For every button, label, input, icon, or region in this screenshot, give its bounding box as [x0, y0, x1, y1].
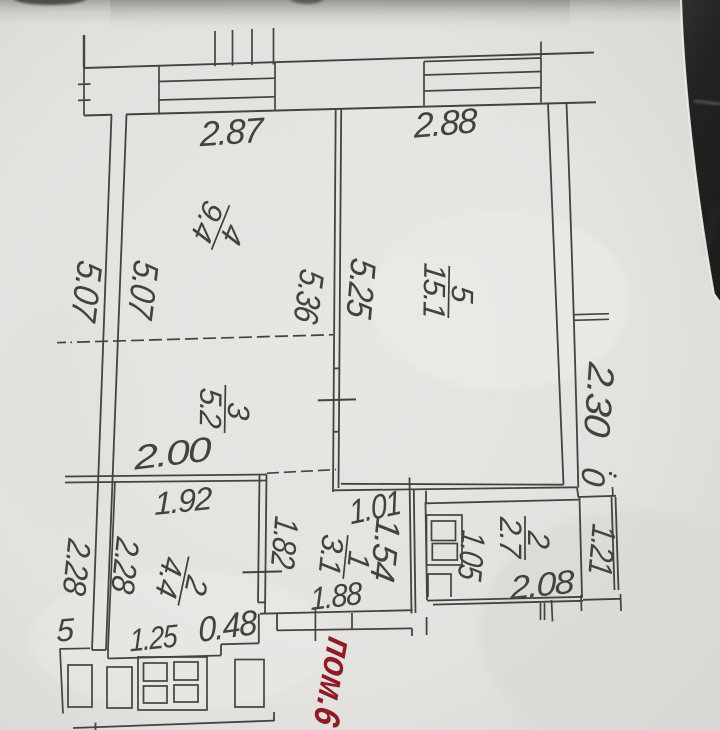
svg-text:2.28: 2.28 — [103, 534, 145, 598]
svg-text:3.1: 3.1 — [312, 532, 350, 577]
svg-text:5.36: 5.36 — [286, 266, 332, 328]
svg-text:1.25: 1.25 — [129, 617, 178, 658]
svg-text:5: 5 — [56, 611, 74, 649]
svg-text:15.1: 15.1 — [416, 261, 452, 319]
svg-text:1.82: 1.82 — [263, 514, 305, 572]
svg-text:2.7: 2.7 — [493, 515, 528, 561]
svg-text:5.07: 5.07 — [63, 257, 111, 326]
svg-text:1.21: 1.21 — [581, 521, 623, 577]
svg-text:2.28: 2.28 — [55, 535, 97, 599]
svg-text:2.08: 2.08 — [509, 563, 576, 607]
svg-text:5.25: 5.25 — [339, 255, 385, 322]
svg-text:1.05: 1.05 — [450, 528, 492, 584]
svg-text:0.48: 0.48 — [197, 603, 258, 650]
svg-text:5.2: 5.2 — [193, 386, 229, 429]
svg-text:1.92: 1.92 — [154, 480, 213, 522]
svg-text:2.30: 2.30 — [576, 359, 623, 441]
svg-text:1.88: 1.88 — [310, 575, 363, 617]
svg-text:2.87: 2.87 — [199, 111, 266, 155]
svg-text:2.88: 2.88 — [413, 101, 478, 146]
